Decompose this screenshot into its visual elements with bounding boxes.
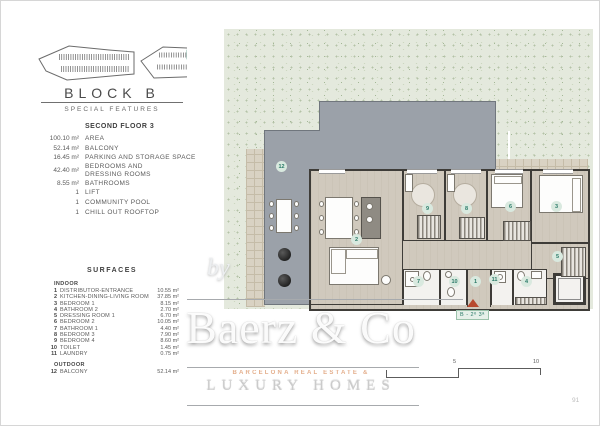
room-badge-7: 7 <box>413 276 424 287</box>
chair <box>319 229 324 235</box>
building-a-outline <box>39 46 134 80</box>
kitchen-island <box>361 197 381 239</box>
toilet-fixture <box>423 271 431 281</box>
page-number: 91 <box>572 397 579 404</box>
brand-logo: Baerz & Co <box>173 301 429 354</box>
floor-features: SECOND FLOOR 3 100.10 m²AREA 52.14 m²BAL… <box>41 123 211 217</box>
scale-bar-segment <box>386 377 459 378</box>
feature-row: 1CHILL OUT ROOFTOP <box>41 208 211 218</box>
room-badge-2: 2 <box>351 234 362 245</box>
toilet-fixture <box>447 287 455 297</box>
feature-row: 100.10 m²AREA <box>41 134 211 144</box>
closet <box>515 297 547 305</box>
chair <box>354 201 359 207</box>
feature-row: 42.40 m²BEDROOMS AND DRESSING ROOMS <box>41 163 211 179</box>
floor-plan: 12 2 9 8 6 3 5 7 10 1 11 4 B - 2º 3ª <box>224 29 593 309</box>
watermark-rule-mid <box>187 367 419 368</box>
scale-bar-tick <box>540 368 541 375</box>
room-badge-10: 10 <box>449 276 460 287</box>
surfaces-table: SURFACES INDOOR 1DISTRIBUTOR-ENTRANCE10.… <box>45 267 179 376</box>
unit-label: B - 2º 3ª <box>456 310 489 320</box>
room-badge-9: 9 <box>422 203 433 214</box>
chair <box>319 215 324 221</box>
brand-tagline: BARCELONA REAL ESTATE & <box>173 370 429 376</box>
wardrobe <box>503 221 531 241</box>
table-row: 12BALCONY52.14 m² <box>45 369 179 375</box>
terrace-tiles-left <box>246 149 265 307</box>
room-badge-6: 6 <box>505 201 516 212</box>
garden-wall <box>508 131 510 161</box>
floor-title: SECOND FLOOR 3 <box>41 123 211 130</box>
room-badge-11: 11 <box>489 274 500 285</box>
outdoor-chair <box>269 213 274 219</box>
window <box>407 169 437 174</box>
room-badge-12: 12 <box>276 161 287 172</box>
floor-lamp <box>381 275 391 285</box>
surfaces-title: SURFACES <box>45 267 179 274</box>
outdoor-chair <box>294 213 299 219</box>
room-badge-1: 1 <box>470 276 481 287</box>
scale-bar-segment <box>458 368 541 369</box>
outdoor-chair <box>269 201 274 207</box>
feature-row: 52.14 m²BALCONY <box>41 144 211 154</box>
desk <box>405 174 413 192</box>
dining-table <box>325 197 353 239</box>
site-plan-diagrams: B <box>37 41 187 89</box>
sink <box>531 271 542 279</box>
desk <box>447 174 455 192</box>
feature-row: 16.45 m²PARKING AND STORAGE SPACE <box>41 153 211 163</box>
feature-row: 8.55 m²BATHROOMS <box>41 179 211 189</box>
window <box>319 169 345 174</box>
balcony-upper <box>319 101 496 174</box>
building-b-outline <box>141 47 187 78</box>
watermark-by: by <box>207 255 230 282</box>
feature-row: 1LIFT <box>41 188 211 198</box>
page-title: BLOCK B <box>41 85 183 101</box>
window <box>451 169 481 174</box>
outdoor-chair <box>269 225 274 231</box>
indoor-heading: INDOOR <box>45 280 179 288</box>
wardrobe <box>417 215 441 239</box>
dressing-wardrobe <box>561 247 586 277</box>
brand-subtitle: LUXURY HOMES <box>173 378 429 395</box>
scale-bar-tick <box>386 370 387 378</box>
window <box>495 169 523 174</box>
feature-row: 1COMMUNITY POOL <box>41 198 211 208</box>
chair <box>354 215 359 221</box>
room-badge-5: 5 <box>552 251 563 262</box>
scale-label-5: 5 <box>453 359 456 365</box>
watermark-rule-top <box>187 299 463 300</box>
sofa <box>329 247 379 285</box>
outdoor-chair <box>294 201 299 207</box>
watermark-rule-bottom <box>187 405 419 406</box>
outdoor-chair <box>294 225 299 231</box>
entrance-arrow <box>467 299 479 307</box>
planter <box>278 274 291 287</box>
scale-label-10: 10 <box>533 359 539 365</box>
page-subtitle: SPECIAL FEATURES <box>41 106 183 113</box>
room-badge-8: 8 <box>461 203 472 214</box>
table-row: 11LAUNDRY0.75 m² <box>45 351 179 357</box>
scale-bar-tick <box>458 368 459 378</box>
room-badge-4: 4 <box>521 276 532 287</box>
planter <box>278 248 291 261</box>
brochure-page: B BLOCK B SPECIAL FEATURES SECOND FLOOR … <box>0 0 600 426</box>
outdoor-heading: OUTDOOR <box>45 361 179 369</box>
window <box>543 169 573 174</box>
title-divider <box>41 102 183 103</box>
room-badge-3: 3 <box>551 201 562 212</box>
outdoor-table <box>276 199 292 233</box>
elevator-shaft <box>553 273 586 305</box>
wardrobe <box>459 217 485 239</box>
chair <box>319 201 324 207</box>
